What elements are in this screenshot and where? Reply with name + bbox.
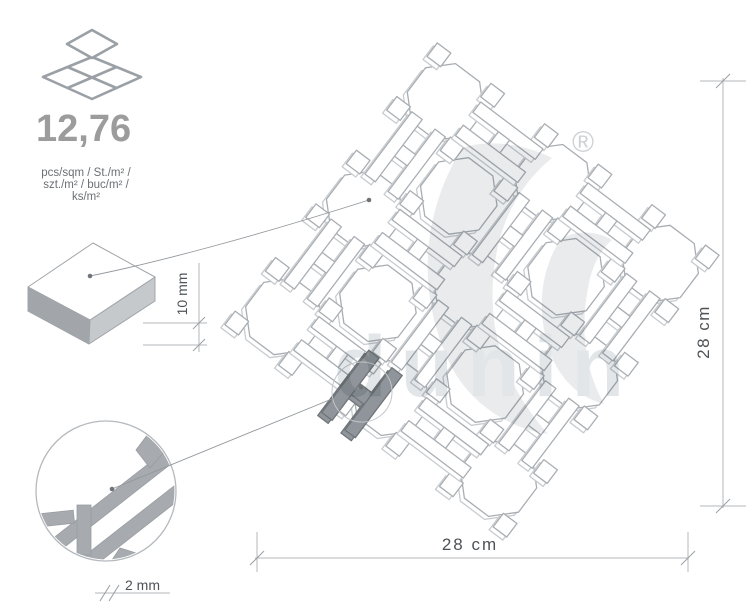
product-spec-sheet: 12,76 pcs/sqm / St./m² / szt./m² / buc/m… [0, 0, 750, 608]
height-label: 28 cm [694, 305, 713, 359]
joint-detail-circle [14, 421, 202, 575]
registered-mark: ® [572, 126, 594, 159]
quantity-value: 12,76 [36, 108, 131, 150]
thickness-label: 10 mm [174, 273, 190, 316]
height-dimension [700, 74, 746, 513]
spec-diagram-canvas: 12,76 pcs/sqm / St./m² / szt./m² / buc/m… [0, 0, 750, 608]
width-label: 28 cm [442, 535, 498, 554]
units-text: pcs/sqm / St./m² / szt./m² / buc/m² / ks… [41, 167, 131, 203]
units-line-3: ks/m² [72, 191, 100, 203]
watermark-brand-text: dunin [334, 319, 638, 415]
units-line-2: szt./m² / buc/m² / [43, 179, 129, 191]
units-line-1: pcs/sqm / St./m² / [41, 167, 131, 179]
joint-label: 2 mm [125, 577, 160, 593]
tiles-per-sqm-icon [43, 30, 141, 99]
tile-3d-illustration [28, 243, 155, 344]
